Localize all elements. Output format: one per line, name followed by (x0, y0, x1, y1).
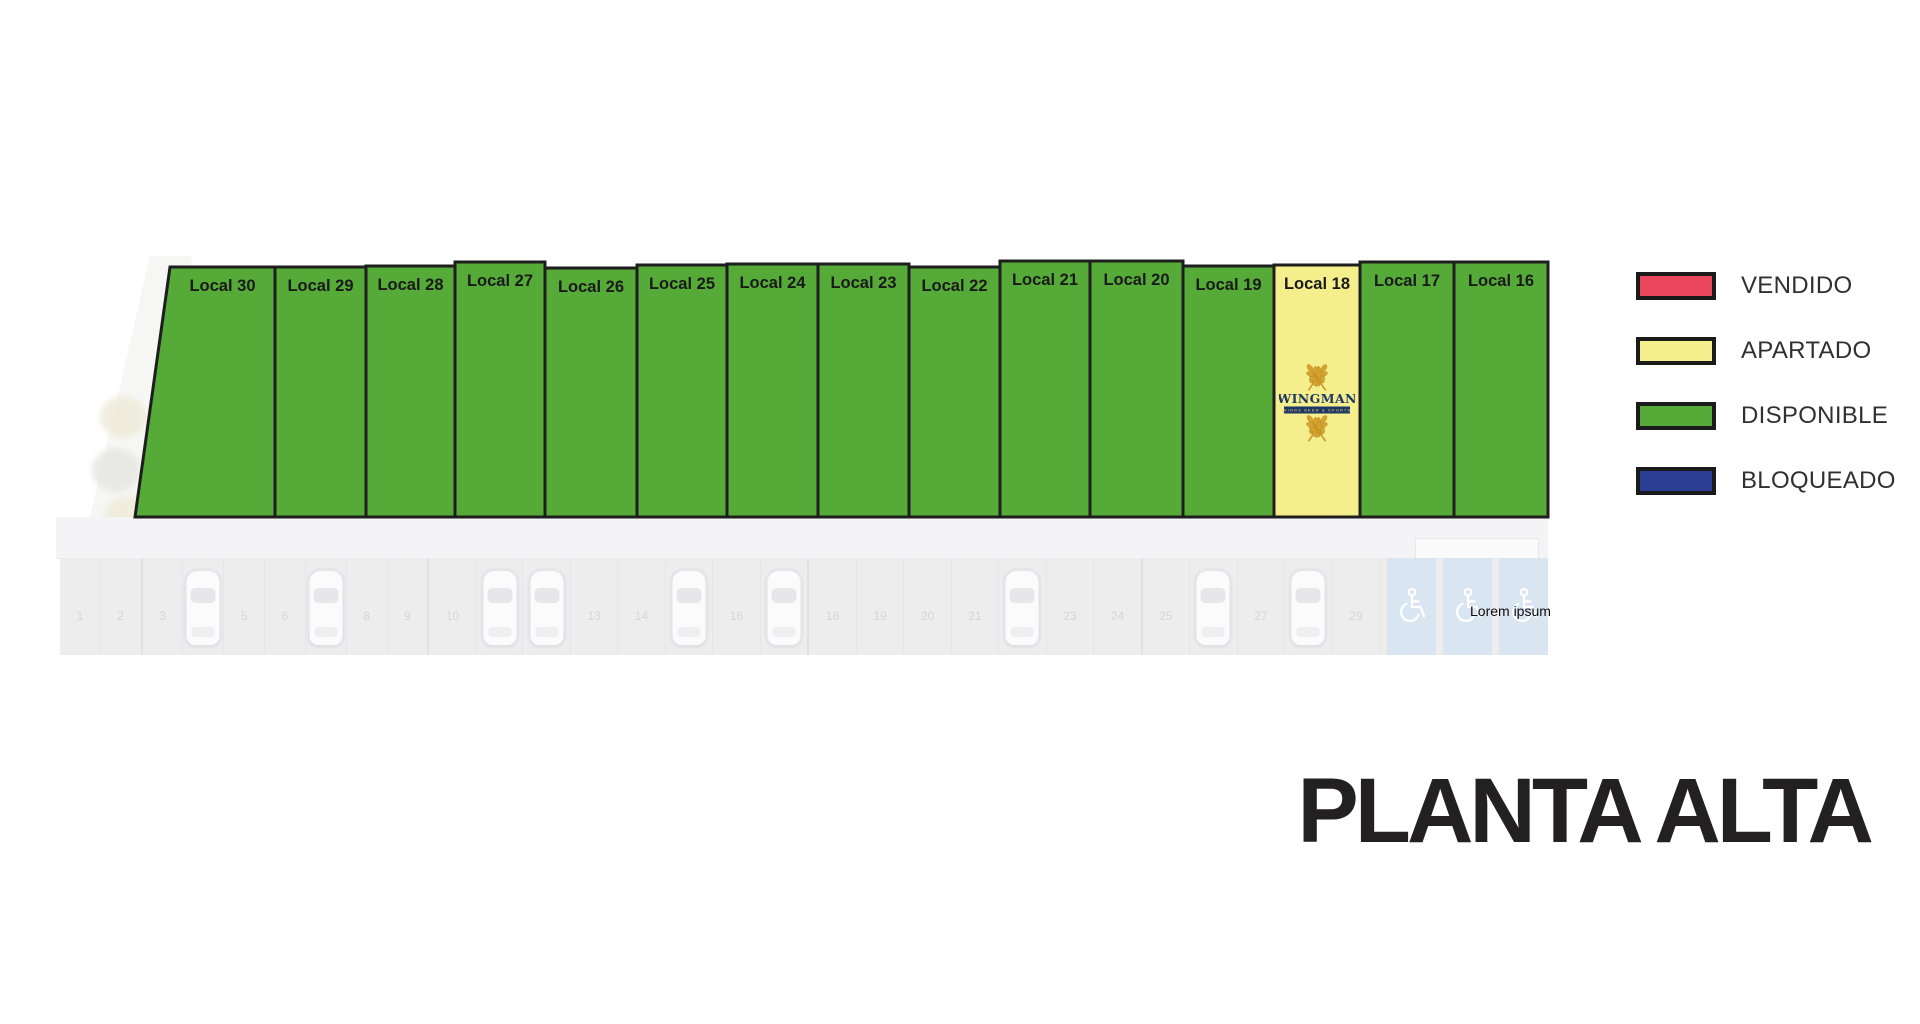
local-27[interactable]: Local 27 (455, 262, 545, 517)
local-22[interactable]: Local 22 (909, 267, 1000, 517)
local-23[interactable]: Local 23 (818, 264, 909, 517)
locals-row: Local 30Local 29Local 28Local 27Local 26… (0, 0, 1920, 1024)
local-20[interactable]: Local 20 (1090, 261, 1183, 517)
legend-item-bloqueado: BLOQUEADO (1636, 466, 1896, 496)
local-label: Local 27 (467, 272, 533, 290)
legend-swatch-vendido (1636, 272, 1716, 300)
local-29[interactable]: Local 29 (275, 267, 366, 517)
local-16-shape[interactable] (1454, 262, 1548, 517)
local-25-shape[interactable] (637, 265, 727, 517)
wingman-name: WINGMAN (1279, 391, 1355, 406)
wheat-cross-icon (1302, 363, 1333, 395)
local-label: Local 28 (377, 276, 443, 294)
local-label: Local 24 (739, 274, 806, 292)
legend-label: DISPONIBLE (1741, 402, 1888, 430)
legend-label: BLOQUEADO (1741, 467, 1896, 495)
local-30-shape[interactable] (135, 267, 275, 517)
local-label: Local 22 (921, 277, 987, 295)
local-19[interactable]: Local 19 (1183, 266, 1274, 517)
local-22-shape[interactable] (909, 267, 1000, 517)
local-17[interactable]: Local 17 (1360, 262, 1454, 517)
local-label: Local 26 (558, 278, 624, 296)
local-24-shape[interactable] (727, 264, 818, 517)
local-label: Local 23 (830, 274, 896, 292)
local-label: Local 30 (189, 277, 255, 295)
local-16[interactable]: Local 16 (1454, 262, 1548, 517)
local-19-shape[interactable] (1183, 266, 1274, 517)
legend-swatch-disponible (1636, 402, 1716, 430)
local-21[interactable]: Local 21 (1000, 261, 1090, 517)
legend-swatch-bloqueado (1636, 467, 1716, 495)
local-17-shape[interactable] (1360, 262, 1454, 517)
wingman-tagline: WINGS BEER & SPORTS (1283, 408, 1352, 413)
local-20-shape[interactable] (1090, 261, 1183, 517)
floor-plan-page: 1234567891011121314151617181920212223242… (0, 0, 1920, 1024)
legend-item-apartado: APARTADO (1636, 336, 1896, 366)
local-21-shape[interactable] (1000, 261, 1090, 517)
local-label: Local 18 (1284, 275, 1350, 293)
local-label: Local 29 (287, 277, 353, 295)
page-title: PLANTA ALTA (1297, 765, 1870, 857)
parking-note: Lorem ipsum (1470, 603, 1551, 619)
legend-label: VENDIDO (1741, 272, 1852, 300)
local-label: Local 19 (1195, 276, 1261, 294)
local-29-shape[interactable] (275, 267, 366, 517)
local-label: Local 17 (1374, 272, 1440, 290)
local-26[interactable]: Local 26 (545, 268, 637, 517)
local-30[interactable]: Local 30 (135, 267, 275, 517)
local-label: Local 21 (1012, 271, 1078, 289)
legend-item-vendido: VENDIDO (1636, 271, 1896, 301)
local-24[interactable]: Local 24 (727, 264, 818, 517)
local-label: Local 25 (649, 275, 715, 293)
local-28[interactable]: Local 28 (366, 266, 455, 517)
wingman-logo: WINGMAN WINGS BEER & SPORTS (1279, 363, 1355, 443)
legend-label: APARTADO (1741, 337, 1871, 365)
local-28-shape[interactable] (366, 266, 455, 517)
local-label: Local 16 (1468, 272, 1534, 290)
legend-swatch-apartado (1636, 337, 1716, 365)
local-26-shape[interactable] (545, 268, 637, 517)
local-25[interactable]: Local 25 (637, 265, 727, 517)
local-27-shape[interactable] (455, 262, 545, 517)
local-label: Local 20 (1103, 271, 1169, 289)
wheat-cross-icon (1302, 411, 1333, 443)
legend: VENDIDOAPARTADODISPONIBLEBLOQUEADO (1636, 271, 1896, 531)
legend-item-disponible: DISPONIBLE (1636, 401, 1896, 431)
local-23-shape[interactable] (818, 264, 909, 517)
